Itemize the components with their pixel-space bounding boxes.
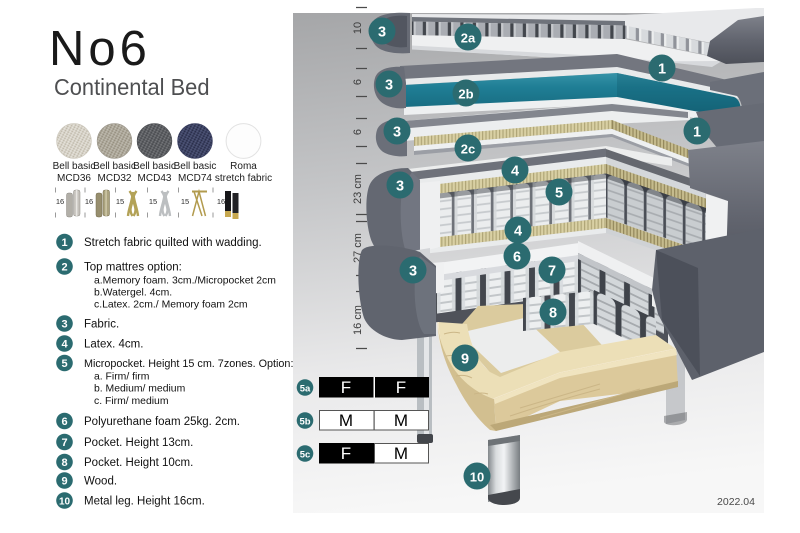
svg-text:1: 1 xyxy=(658,62,666,78)
svg-text:5b: 5b xyxy=(299,417,310,428)
svg-text:9: 9 xyxy=(461,352,469,368)
svg-text:6: 6 xyxy=(513,250,521,266)
svg-text:M: M xyxy=(339,411,353,430)
svg-text:M: M xyxy=(394,444,408,463)
svg-text:6: 6 xyxy=(352,79,364,85)
svg-text:10: 10 xyxy=(470,470,484,485)
svg-text:5c: 5c xyxy=(300,450,311,461)
svg-text:M: M xyxy=(394,411,408,430)
svg-text:5a: 5a xyxy=(300,384,311,395)
svg-text:2b: 2b xyxy=(458,87,473,102)
svg-text:23 cm: 23 cm xyxy=(352,174,364,204)
svg-text:F: F xyxy=(341,378,351,397)
svg-text:5: 5 xyxy=(555,186,563,202)
svg-text:F: F xyxy=(341,444,351,463)
svg-text:2c: 2c xyxy=(461,142,475,157)
svg-text:3: 3 xyxy=(393,125,401,141)
svg-text:8: 8 xyxy=(549,306,557,322)
svg-text:10: 10 xyxy=(352,22,364,34)
svg-text:4: 4 xyxy=(514,224,522,240)
svg-text:3: 3 xyxy=(409,264,417,280)
svg-text:6: 6 xyxy=(352,129,364,135)
svg-text:3: 3 xyxy=(396,179,404,195)
svg-text:1: 1 xyxy=(693,125,701,141)
svg-text:7: 7 xyxy=(548,264,556,280)
svg-text:2a: 2a xyxy=(461,31,476,46)
svg-text:3: 3 xyxy=(385,78,393,94)
svg-text:4: 4 xyxy=(511,164,519,180)
svg-text:F: F xyxy=(396,378,406,397)
svg-text:2022.04: 2022.04 xyxy=(717,496,755,508)
svg-text:3: 3 xyxy=(378,25,386,41)
